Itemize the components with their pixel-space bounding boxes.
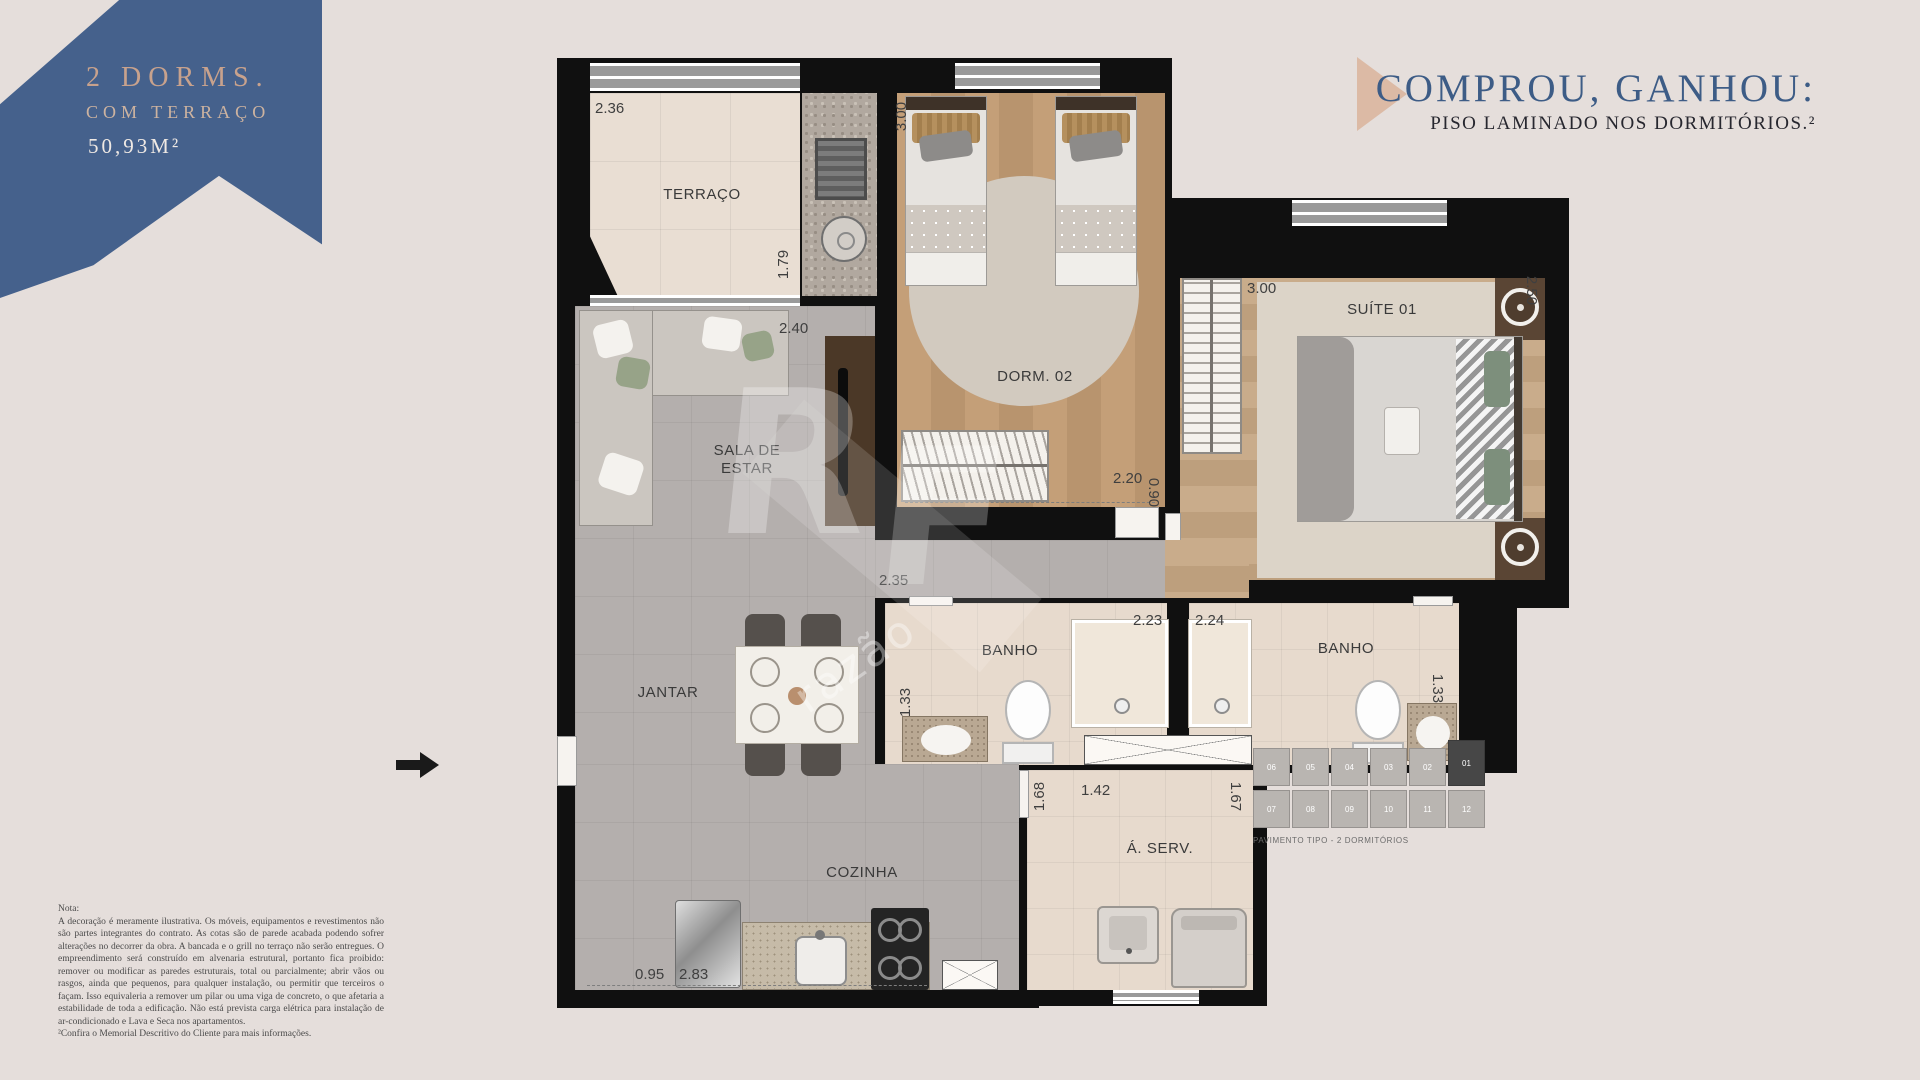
unit-area: 50,93M² [88, 134, 181, 159]
key-diagram-unit-09: 09 [1331, 790, 1368, 828]
dim-banho1-width: 2.23 [1133, 612, 1162, 629]
kitchen-shaft [942, 960, 998, 990]
bathroom-sink-icon [902, 716, 988, 762]
dim-hall-length: 2.35 [879, 572, 908, 589]
page: { "page": {"background": "#e5dedb"}, "ba… [0, 0, 1920, 1080]
key-diagram-unit-04: 04 [1331, 748, 1368, 786]
dorm02-closet [901, 430, 1049, 502]
dim-banho2-width: 2.24 [1195, 612, 1224, 629]
room-label-suite01: SUÍTE 01 [1327, 301, 1437, 319]
key-diagram-unit-06: 06 [1253, 748, 1290, 786]
aserv-window [1113, 990, 1199, 1004]
suite01-floor [1180, 278, 1545, 580]
dim-sala-width: 2.40 [779, 320, 808, 337]
dim-dorm02-width: 2.20 [1113, 470, 1142, 487]
dim-suite-depth: 2.50 [1523, 276, 1540, 305]
room-label-banho1: BANHO [965, 642, 1055, 660]
shower-icon [1189, 620, 1251, 727]
banho1-door [909, 596, 953, 606]
key-diagram-top-row: 060504030201 [1253, 748, 1503, 786]
dim-banho1-depth: 1.33 [897, 688, 914, 717]
key-diagram-unit-11: 11 [1409, 790, 1446, 828]
room-label-aserv: Á. SERV. [1105, 840, 1215, 858]
dorm02-floor [897, 93, 1165, 507]
entrance-arrow-icon [396, 752, 440, 778]
key-diagram-unit-08: 08 [1292, 790, 1329, 828]
cooktop-icon [871, 908, 929, 990]
legal-note: Nota: A decoração é meramente ilustrativ… [58, 903, 384, 1041]
banho2-door [1413, 596, 1453, 606]
room-label-sala: SALA DE ESTAR [697, 442, 797, 478]
duct-shaft [1084, 735, 1252, 765]
dim-terraco-width: 2.36 [595, 100, 624, 117]
dim-aserv-depth: 1.67 [1227, 782, 1244, 811]
suite01-bed [1297, 336, 1523, 522]
sink-icon [821, 216, 867, 262]
shower-icon [1072, 620, 1168, 727]
dorm02-door [1115, 507, 1159, 538]
floor-plan: TERRAÇO SALA DE ESTAR DORM. 02 SUÍTE 01 … [557, 58, 1567, 1008]
hall-wood-floor [1165, 540, 1249, 598]
room-label-dorm02: DORM. 02 [985, 368, 1085, 386]
dim-banho2-depth: 1.33 [1429, 674, 1446, 703]
suite01-window [1292, 200, 1447, 226]
sofa-pillow [615, 355, 652, 390]
dim-hall-width: 0.90 [1145, 478, 1162, 507]
kitchen-sink-icon [795, 936, 847, 986]
dim-line [905, 502, 1155, 503]
unit-type-title: 2 DORMS. [86, 62, 270, 94]
dorm02-window [955, 63, 1100, 89]
tv-console [825, 336, 875, 526]
washer-icon [1171, 908, 1247, 988]
dim-aserv-width: 1.42 [1081, 782, 1110, 799]
note-body: A decoração é meramente ilustrativa. Os … [58, 916, 384, 1029]
key-diagram-bottom-row: 070809101112 [1253, 790, 1503, 828]
key-diagram-unit-07: 07 [1253, 790, 1290, 828]
key-diagram-unit-12: 12 [1448, 790, 1485, 828]
terraco-window [590, 63, 800, 91]
key-diagram-caption: PAVIMENTO TIPO - 2 DORMITÓRIOS [1253, 836, 1503, 845]
laundry-tank-icon [1097, 906, 1159, 964]
key-diagram-unit-05: 05 [1292, 748, 1329, 786]
aserv-door [1019, 770, 1029, 818]
dim-cozinha-width: 2.83 [679, 966, 708, 983]
vanity-mirror-icon [1501, 528, 1539, 566]
dorm02-bed-2 [1055, 96, 1137, 286]
dorm02-bed-1 [905, 96, 987, 286]
dim-cozinha-depth: 1.68 [1031, 782, 1048, 811]
dining-table [735, 646, 859, 744]
key-diagram-unit-03: 03 [1370, 748, 1407, 786]
toilet-icon [1002, 680, 1054, 764]
unit-type-subtitle: COM TERRAÇO [86, 102, 270, 123]
dim-cozinha-door: 0.95 [635, 966, 664, 983]
grill-icon [815, 138, 867, 200]
key-diagram-unit-01: 01 [1448, 740, 1485, 786]
dim-suite-width: 3.00 [1247, 280, 1276, 297]
room-label-cozinha: COZINHA [807, 864, 917, 882]
note-footnote: ²Confira o Memorial Descritivo do Client… [58, 1028, 384, 1041]
dim-terraco-depth: 1.79 [775, 250, 792, 279]
key-diagram-unit-10: 10 [1370, 790, 1407, 828]
room-label-banho2: BANHO [1301, 640, 1391, 658]
dim-line [587, 985, 927, 986]
suite01-wardrobe [1182, 278, 1242, 454]
hall-floor [875, 540, 1165, 598]
sofa-pillow [701, 316, 743, 353]
note-title: Nota: [58, 903, 384, 916]
key-diagram: 060504030201 070809101112 PAVIMENTO TIPO… [1253, 748, 1503, 845]
room-label-jantar: JANTAR [623, 684, 713, 702]
dim-dorm02-depth: 3.00 [893, 102, 910, 131]
room-label-terraco: TERRAÇO [647, 186, 757, 204]
key-diagram-unit-02: 02 [1409, 748, 1446, 786]
entry-door [557, 736, 577, 786]
